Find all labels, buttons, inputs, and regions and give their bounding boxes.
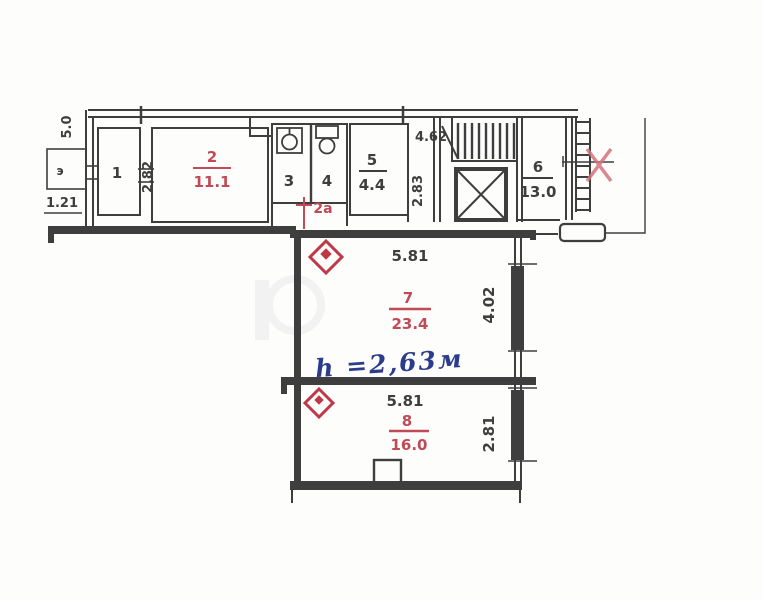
room-8-number: 8 bbox=[402, 412, 412, 430]
elevator-icon bbox=[456, 169, 506, 220]
floor-plan-scan: э 5.0 1.21 1 2.82 2 11.1 3 4 bbox=[0, 0, 763, 600]
doormat bbox=[560, 224, 605, 241]
balcony-side-dim: 5.0 bbox=[60, 115, 75, 138]
staircase-icon bbox=[442, 117, 517, 162]
window-room-8 bbox=[508, 388, 537, 461]
room-2-area: 11.1 bbox=[193, 173, 230, 191]
room-6-number: 6 bbox=[533, 158, 543, 176]
strip-bottom-wall bbox=[48, 226, 536, 243]
watermark bbox=[255, 279, 321, 340]
approval-stamp-icon bbox=[310, 241, 342, 273]
room-2-depth-dim: 2.82 bbox=[141, 161, 156, 193]
balcony-label: э bbox=[56, 164, 63, 178]
change-cross-mark bbox=[296, 197, 312, 229]
room-8-depth-dim: 2.81 bbox=[480, 415, 498, 452]
corridor-2a-number: 2а bbox=[313, 201, 332, 217]
room-2: 2.82 2 11.1 bbox=[141, 128, 268, 222]
room-7-depth-dim: 4.02 bbox=[480, 286, 498, 323]
room-1-number: 1 bbox=[112, 164, 122, 182]
balcony: э 5.0 1.21 bbox=[44, 115, 98, 213]
room-2-number: 2 bbox=[207, 148, 217, 166]
room-8-bottom-wall bbox=[290, 481, 522, 503]
room-4-number: 4 bbox=[322, 172, 332, 190]
room-7-area: 23.4 bbox=[391, 315, 428, 333]
room-3-4-block: 3 4 bbox=[272, 124, 347, 226]
room-5-number: 5 bbox=[367, 151, 377, 169]
room-7-number: 7 bbox=[403, 289, 413, 307]
room-8-area: 16.0 bbox=[390, 436, 427, 454]
toilet-icon bbox=[316, 126, 338, 154]
approval-stamp-icon bbox=[305, 389, 333, 417]
column-wall bbox=[517, 117, 522, 222]
floor-plan-drawing: э 5.0 1.21 1 2.82 2 11.1 3 4 bbox=[0, 0, 763, 600]
room-7-width-dim: 5.81 bbox=[391, 247, 428, 265]
vent-box bbox=[374, 460, 401, 484]
sink-icon bbox=[277, 128, 302, 153]
room-3-number: 3 bbox=[284, 172, 294, 190]
room-5-area: 4.4 bbox=[359, 176, 386, 194]
stair-width-dim: 4.62 bbox=[415, 130, 447, 145]
corridor-2a: 2а bbox=[296, 197, 333, 229]
room-5: 5 4.4 bbox=[350, 124, 408, 215]
room-8-width-dim: 5.81 bbox=[386, 392, 423, 410]
entry-door bbox=[562, 118, 614, 212]
room-6-area: 13.0 bbox=[519, 183, 556, 201]
room-8: 5.81 8 16.0 2.81 bbox=[290, 385, 537, 503]
duct-depth-dim: 2.83 bbox=[411, 175, 426, 207]
landing-boundary bbox=[605, 118, 645, 233]
room-6: 6 13.0 bbox=[517, 117, 572, 220]
balcony-width-dim: 1.21 bbox=[46, 196, 78, 211]
window-room-7 bbox=[508, 264, 537, 351]
room-7: 5.81 7 23.4 4.02 h =2,63м bbox=[294, 237, 537, 383]
